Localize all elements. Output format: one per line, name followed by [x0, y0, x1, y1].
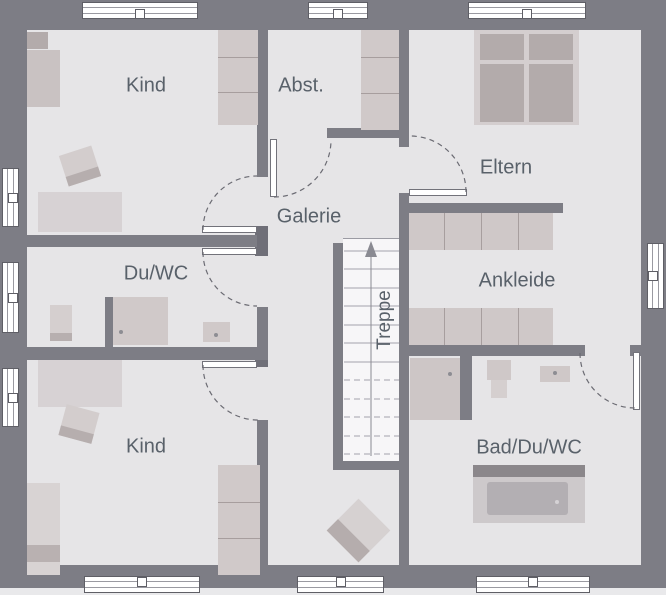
- bed-mattress: [529, 64, 573, 122]
- sink: [540, 366, 570, 382]
- toilet: [50, 305, 72, 333]
- window: [2, 368, 19, 427]
- window: [297, 576, 384, 593]
- window-handle: [8, 393, 18, 403]
- window-handle: [8, 293, 18, 303]
- window-handle: [522, 9, 532, 19]
- window-handle: [333, 9, 343, 19]
- window: [647, 243, 664, 309]
- toilet: [50, 333, 72, 341]
- door-leaf-eltern: [409, 189, 467, 196]
- room-label-duwc: Du/WC: [124, 263, 188, 286]
- window: [308, 2, 368, 19]
- window-handle: [648, 271, 658, 281]
- wall-duwc-stub: [105, 297, 113, 349]
- room-label-abst: Abst.: [278, 75, 324, 98]
- wall-center-vertical: [399, 193, 409, 565]
- room-label-kind-2: Kind: [126, 436, 166, 459]
- wardrobe: [27, 50, 60, 107]
- bed-pillow: [27, 545, 60, 562]
- window: [476, 576, 590, 593]
- shower: [410, 358, 460, 420]
- wardrobe-row: [409, 213, 553, 250]
- window-handle: [336, 577, 346, 587]
- floor-plan: Kind Abst. Eltern Galerie Du/WC Ankleide…: [0, 0, 666, 595]
- wall-abst-eltern: [399, 30, 409, 147]
- bed-mattress: [480, 64, 524, 122]
- sideboard: [38, 192, 122, 232]
- sideboard: [38, 360, 122, 407]
- window: [468, 2, 586, 19]
- door-leaf-bad: [633, 352, 640, 410]
- room-label-treppe: Treppe: [374, 290, 396, 350]
- room-label-ankleide: Ankleide: [479, 270, 556, 293]
- toilet: [487, 360, 511, 380]
- room-label-galerie: Galerie: [277, 206, 341, 229]
- wall-ankleide-bottom: [399, 345, 585, 356]
- door-leaf-kind2: [202, 361, 257, 368]
- room-label-kind-1: Kind: [126, 75, 166, 98]
- sink: [203, 322, 230, 342]
- wardrobe: [218, 465, 260, 575]
- room-label-bad: Bad/Du/WC: [476, 437, 582, 460]
- window: [84, 576, 200, 593]
- window-handle: [135, 9, 145, 19]
- bathtub-basin: [487, 482, 568, 515]
- wall-ankleide-top: [409, 203, 563, 213]
- door-leaf-duwc: [202, 248, 257, 255]
- shower: [113, 297, 168, 345]
- wall-shower-bad: [460, 356, 472, 420]
- toilet: [491, 380, 507, 398]
- bed-pillow: [480, 34, 524, 60]
- window: [82, 2, 198, 19]
- window-handle: [137, 577, 147, 587]
- bed-pillow: [529, 34, 573, 60]
- wall-kind1-duwc: [27, 235, 257, 247]
- wardrobe: [27, 32, 48, 49]
- wall-stair-left: [333, 243, 343, 470]
- wall-stair-bottom: [333, 460, 409, 470]
- bathtub: [473, 477, 585, 523]
- wall-kind1-abst: [257, 30, 268, 177]
- door-leaf-kind1: [202, 226, 257, 233]
- wardrobe: [218, 30, 258, 125]
- window: [2, 168, 19, 227]
- bathtub-ledge: [473, 465, 585, 477]
- shelf: [361, 30, 399, 130]
- room-label-eltern: Eltern: [480, 157, 532, 180]
- door-leaf-abst: [270, 139, 277, 197]
- window-handle: [528, 577, 538, 587]
- window-handle: [8, 193, 18, 203]
- wall-duwc-kind2: [27, 347, 268, 360]
- window: [2, 262, 19, 333]
- wardrobe-row: [409, 308, 553, 345]
